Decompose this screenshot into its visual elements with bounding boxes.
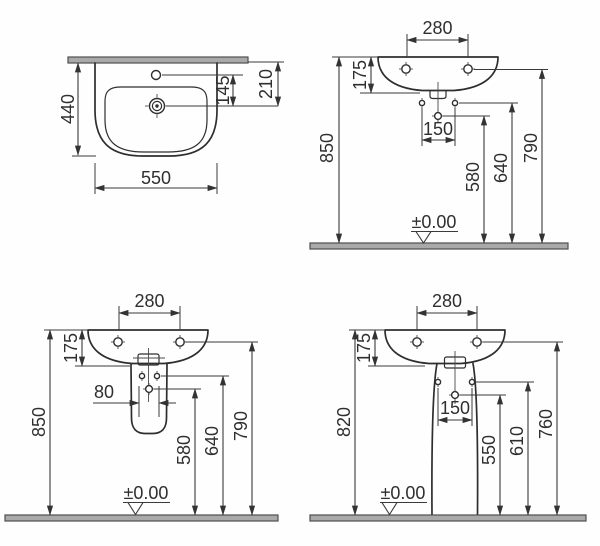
dim-610: 610 [507,426,527,456]
dim-640: 640 [491,153,511,183]
dim-850: 850 [29,407,49,437]
fixing-hole-small [419,98,424,108]
fixing-hole [111,335,125,349]
dim-790: 790 [231,411,251,441]
semi-pedestal-outline [131,364,167,434]
floor-datum: ±0.00 [380,483,427,515]
dim-tap-spacing: 280 [134,291,164,311]
drain-fixing-hole [143,383,155,395]
dim-550: 550 [479,435,499,465]
datum-label: ±0.00 [381,483,426,503]
floor-datum: ±0.00 [123,483,170,515]
technical-drawing-page: 440 550 145 210 280 175 85 [0,0,600,546]
dim-760: 760 [536,409,556,439]
dim-580: 580 [174,435,194,465]
dim-790: 790 [521,133,541,163]
wall-hung-front-view: 280 175 850 150 790 640 580 ±0.00 [310,18,568,249]
fixing-hole [461,62,475,76]
dim-850: 850 [317,133,337,163]
dim-tap-spacing: 280 [422,18,452,38]
dim-tap-spacing: 280 [432,291,462,311]
datum-triangle-icon [382,503,397,515]
wall-section [68,57,248,63]
dim-80: 80 [94,382,114,402]
dim-overall-depth: 440 [58,94,78,124]
semi-pedestal-front-view: 280 175 850 80 790 640 580 ±0.00 [5,291,278,521]
dim-820: 820 [334,407,354,437]
datum-label: ±0.00 [412,212,457,232]
floor-line [310,515,586,521]
dim-rim-height: 175 [354,333,374,363]
pedestal-outline [432,364,437,516]
fixing-hole [470,335,484,349]
floor-line [310,243,568,249]
floor-line [5,515,278,521]
floor-datum: ±0.00 [411,212,458,243]
full-pedestal-front-view: 280 175 820 150 760 610 550 ±0.00 [310,291,586,521]
plan-view: 440 550 145 210 [58,57,284,194]
fixing-hole-small [139,371,144,381]
fixing-hole-small [435,377,440,387]
dim-tap-to-drain: 145 [213,75,233,105]
fixing-hole-small [469,377,474,387]
dim-150: 150 [440,398,470,418]
fixing-hole [399,62,413,76]
dim-wall-to-drain: 210 [256,69,276,99]
dim-150: 150 [423,119,453,139]
datum-triangle-icon [416,232,431,244]
dim-rim-height: 175 [350,60,370,90]
dim-640: 640 [202,426,222,456]
basin-outline [88,330,208,364]
fixing-hole-small [452,98,457,108]
basin-inner-rim [105,87,207,152]
dim-580: 580 [463,162,483,192]
tap-hole [152,71,161,80]
fixing-hole [410,335,424,349]
dim-overall-width: 550 [141,168,171,188]
pedestal-outline [473,364,478,516]
datum-triangle-icon [128,503,143,515]
dim-rim-height: 175 [61,333,81,363]
datum-label: ±0.00 [124,483,169,503]
fixing-hole-small [154,371,159,381]
drain-hole [145,94,169,118]
